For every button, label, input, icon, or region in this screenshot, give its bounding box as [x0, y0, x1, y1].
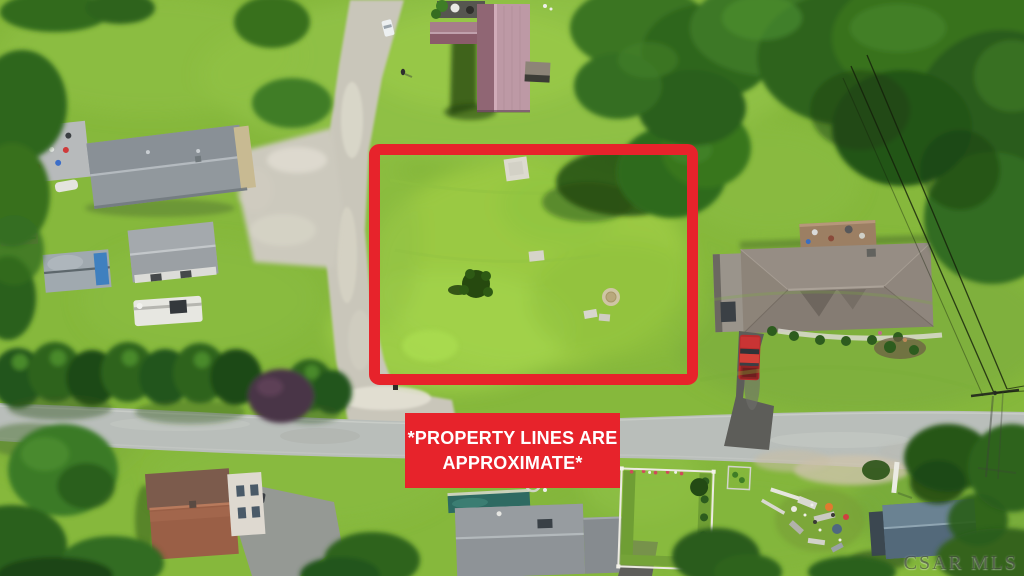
brown-shed	[524, 61, 550, 82]
disclaimer-banner: *PROPERTY LINES ARE APPROXIMATE*	[405, 413, 620, 488]
gravel-parking	[237, 128, 342, 268]
left-shed	[42, 249, 111, 293]
purple-tree	[248, 369, 314, 423]
person	[401, 69, 405, 75]
banner-line2: APPROXIMATE*	[442, 451, 582, 476]
left-garage	[128, 222, 219, 284]
banner-line1: *PROPERTY LINES ARE	[408, 426, 618, 451]
concrete-pad	[504, 156, 530, 181]
small-slab	[529, 250, 545, 262]
wire-pen	[727, 466, 750, 489]
right-house	[713, 243, 934, 335]
aerial-photo-scene	[0, 0, 1024, 576]
aerial-photo: *PROPERTY LINES ARE APPROXIMATE* CSAR ML…	[0, 0, 1024, 576]
mls-watermark: CSAR MLS	[904, 552, 1018, 575]
camper-trailer	[133, 296, 203, 327]
